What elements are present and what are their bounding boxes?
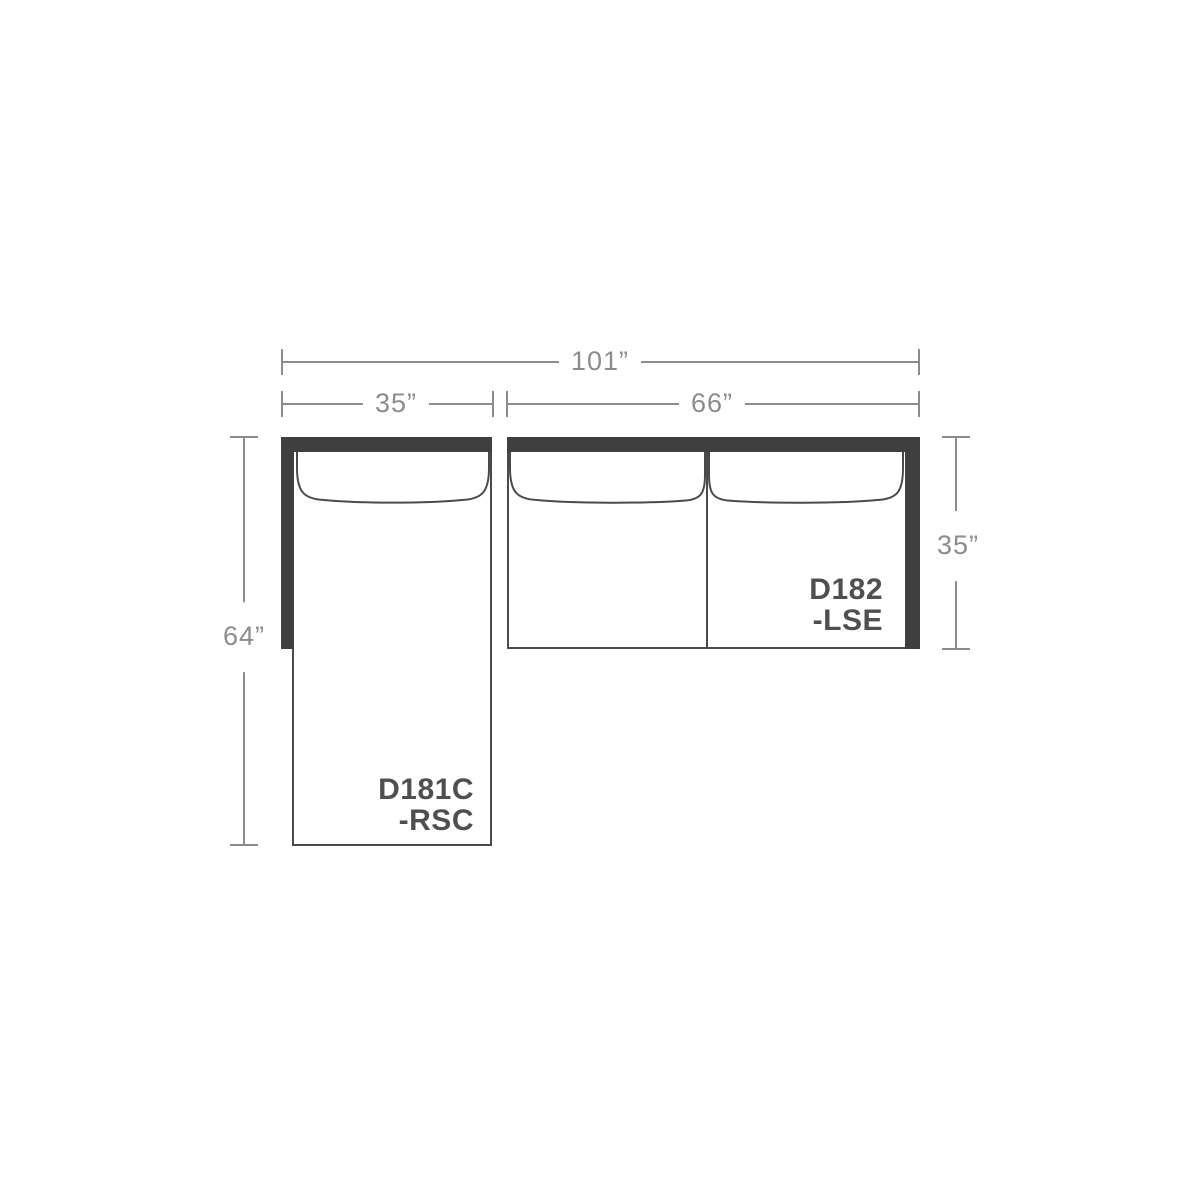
sofa-depth-dimension-label: 35” [930,511,986,581]
chaise-depth-dimension-label: 64” [216,602,272,672]
chaise-model-suffix: -RSC [378,805,474,836]
sofa-model-number: D182 [809,574,883,605]
sofa-seat-cushion-left [510,452,705,503]
sectional-dimension-diagram: 101” 35” 66” 64” 35” D181C -RSC D182 -LS… [0,0,1200,1200]
sofa-back-frame [507,437,920,452]
sofa-model-label: D182 -LSE [809,574,883,636]
sofa-width-dimension-label: 66” [679,387,745,421]
sectional-diagram-canvas [0,0,1200,1200]
sofa-model-suffix: -LSE [809,605,883,636]
chaise-model-number: D181C [378,774,474,805]
overall-width-dimension-label: 101” [559,345,641,379]
chaise-back-frame [281,437,492,452]
chaise-model-label: D181C -RSC [378,774,474,836]
chaise-seat-cushion [297,452,489,503]
sofa-seat-cushion-right [709,452,903,503]
sofa-arm-frame [905,437,920,649]
chaise-arm-frame [281,437,294,649]
chaise-width-dimension-label: 35” [363,387,429,421]
